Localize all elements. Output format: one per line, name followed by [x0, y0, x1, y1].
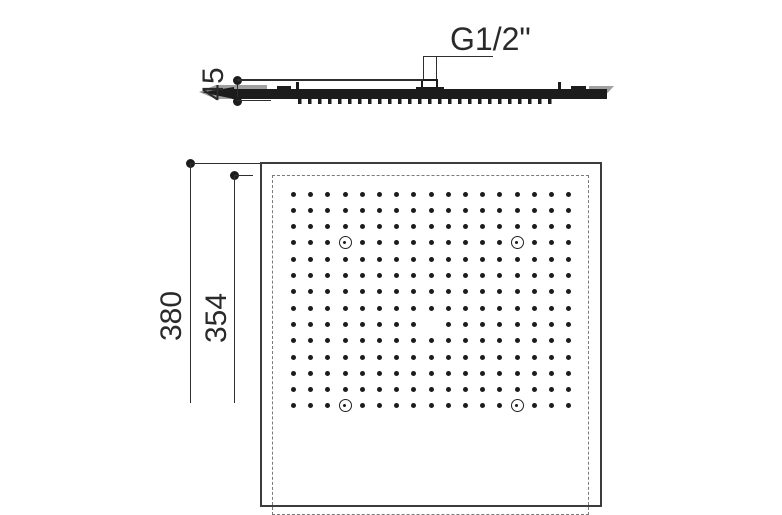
nozzle-teeth-profile: [298, 98, 557, 104]
nozzle-dot: [377, 273, 382, 278]
nozzle-dot: [549, 257, 554, 262]
nozzle-dot: [463, 355, 468, 360]
nozzle-dot: [532, 192, 537, 197]
thread-size-label: G1/2": [450, 22, 531, 56]
nozzle-dot: [360, 224, 365, 229]
nozzle-dot: [308, 257, 313, 262]
nozzle-dot: [566, 355, 571, 360]
nozzle-dot: [429, 338, 434, 343]
top-clip-right: [571, 86, 586, 90]
nozzle-dot: [566, 371, 571, 376]
nozzle-dot: [291, 208, 296, 213]
outer-dim-line: [190, 163, 191, 403]
nozzle-dot: [377, 192, 382, 197]
shower-head-technical-drawing: { "drawing": { "type": "technical-drawin…: [0, 0, 782, 400]
nozzle-dot: [532, 355, 537, 360]
nozzle-dot: [480, 257, 485, 262]
nozzle-dot: [515, 289, 520, 294]
nozzle-dot: [343, 192, 348, 197]
nozzle-dot: [463, 306, 468, 311]
nozzle-dot: [446, 306, 451, 311]
nozzle-dot: [343, 306, 348, 311]
nozzle-dot: [532, 224, 537, 229]
nozzle-dot: [532, 257, 537, 262]
nozzle-dot: [291, 371, 296, 376]
nozzle-dot: [343, 208, 348, 213]
top-clip-left: [277, 86, 291, 90]
nozzle-dot: [360, 273, 365, 278]
mounting-hole: [511, 236, 524, 249]
nozzle-dot: [429, 387, 434, 392]
nozzle-dot: [394, 355, 399, 360]
nozzle-dot: [411, 192, 416, 197]
nozzle-dot: [308, 306, 313, 311]
top-tab-left: [296, 82, 299, 90]
nozzle-dot: [394, 257, 399, 262]
inner-dim-extension: [234, 175, 253, 176]
nozzle-dot: [291, 273, 296, 278]
nozzle-dot: [549, 322, 554, 327]
nozzle-dot: [377, 371, 382, 376]
nozzle-dot: [343, 257, 348, 262]
nozzle-dot: [291, 355, 296, 360]
nozzle-dot: [343, 387, 348, 392]
mounting-hole-center: [343, 241, 346, 244]
nozzle-dot: [343, 355, 348, 360]
nozzle-dot: [463, 371, 468, 376]
nozzle-dot: [394, 306, 399, 311]
nozzle-dot: [532, 387, 537, 392]
height-dim-label: 45: [199, 67, 229, 101]
nozzle-dot: [532, 273, 537, 278]
nozzle-dot: [429, 192, 434, 197]
nozzle-dot: [343, 371, 348, 376]
nozzle-dot: [343, 322, 348, 327]
nozzle-dot: [343, 338, 348, 343]
mounting-hole-center: [343, 404, 346, 407]
nozzle-dot: [549, 273, 554, 278]
nozzle-dot: [360, 257, 365, 262]
nozzle-dot: [549, 208, 554, 213]
nozzle-dot: [497, 192, 502, 197]
nozzle-dot: [566, 192, 571, 197]
nozzle-dot: [446, 322, 451, 327]
thread-connector-flange: [416, 87, 444, 91]
nozzle-dot: [532, 208, 537, 213]
nozzle-dot: [377, 322, 382, 327]
mounting-hole: [511, 399, 524, 412]
nozzle-dot: [549, 306, 554, 311]
mounting-hole-center: [515, 404, 518, 407]
nozzle-dot: [377, 306, 382, 311]
nozzle-dot: [549, 355, 554, 360]
nozzle-dot: [532, 371, 537, 376]
nozzle-dot: [463, 257, 468, 262]
nozzle-dot: [549, 192, 554, 197]
inner-dim-label: 354: [202, 291, 232, 345]
nozzle-dot: [446, 273, 451, 278]
nozzle-dot: [446, 257, 451, 262]
nozzle-dot: [515, 355, 520, 360]
nozzle-dot: [480, 192, 485, 197]
nozzle-dot: [532, 322, 537, 327]
outer-dim-extension: [190, 163, 262, 164]
nozzle-dot: [291, 257, 296, 262]
height-dim-extension-top: [237, 79, 423, 80]
mounting-hole: [339, 399, 352, 412]
nozzle-dot: [360, 192, 365, 197]
nozzle-dot: [377, 208, 382, 213]
nozzle-dot: [429, 289, 434, 294]
nozzle-dot: [360, 208, 365, 213]
top-tab-right: [558, 82, 561, 90]
inner-dim-line: [234, 175, 235, 403]
nozzle-dot: [308, 192, 313, 197]
shower-face-plate: [260, 162, 602, 507]
nozzle-dot: [532, 306, 537, 311]
nozzle-dot: [429, 224, 434, 229]
nozzle-dot: [394, 192, 399, 197]
nozzle-dot: [308, 371, 313, 376]
nozzle-dot: [497, 355, 502, 360]
nozzle-dot: [429, 273, 434, 278]
mounting-hole: [339, 236, 352, 249]
nozzle-dot: [566, 257, 571, 262]
nozzle-dot: [480, 355, 485, 360]
nozzle-dot: [515, 338, 520, 343]
nozzle-dot: [515, 387, 520, 392]
nozzle-dot: [446, 338, 451, 343]
nozzle-dot: [360, 355, 365, 360]
nozzle-dot: [515, 257, 520, 262]
nozzle-dot: [291, 322, 296, 327]
nozzle-dot: [429, 257, 434, 262]
nozzle-dot: [480, 208, 485, 213]
nozzle-dot: [360, 338, 365, 343]
nozzle-dot: [343, 273, 348, 278]
nozzle-dot: [463, 208, 468, 213]
nozzle-dot: [360, 371, 365, 376]
nozzle-dot: [515, 322, 520, 327]
nozzle-dot: [325, 355, 330, 360]
nozzle-dot: [446, 387, 451, 392]
nozzle-dot: [515, 371, 520, 376]
nozzle-dot: [515, 192, 520, 197]
nozzle-dot: [308, 355, 313, 360]
nozzle-dot: [429, 208, 434, 213]
nozzle-dot: [549, 371, 554, 376]
nozzle-dot: [463, 322, 468, 327]
nozzle-dot: [429, 371, 434, 376]
nozzle-dot: [291, 192, 296, 197]
nozzle-dot: [566, 208, 571, 213]
nozzle-dot: [360, 306, 365, 311]
nozzle-dot: [532, 338, 537, 343]
nozzle-dot: [566, 306, 571, 311]
height-dim-extension-bottom: [237, 100, 271, 101]
nozzle-dot: [325, 192, 330, 197]
nozzle-dot: [291, 306, 296, 311]
nozzle-dot: [463, 192, 468, 197]
nozzle-dot: [394, 371, 399, 376]
nozzle-dot: [411, 355, 416, 360]
nozzle-dot: [446, 224, 451, 229]
nozzle-dot: [394, 208, 399, 213]
nozzle-dot: [463, 273, 468, 278]
nozzle-dot: [429, 306, 434, 311]
nozzle-dot: [360, 322, 365, 327]
nozzle-dot: [515, 273, 520, 278]
mounting-hole-center: [515, 241, 518, 244]
nozzle-dot: [480, 306, 485, 311]
nozzle-dot: [377, 257, 382, 262]
nozzle-dot: [515, 224, 520, 229]
nozzle-dot: [446, 192, 451, 197]
nozzle-dot: [446, 208, 451, 213]
nozzle-dot: [515, 306, 520, 311]
outer-dim-label: 380: [157, 289, 187, 343]
nozzle-dot: [343, 224, 348, 229]
nozzle-dot: [360, 387, 365, 392]
nozzle-dot: [429, 355, 434, 360]
nozzle-dot: [377, 355, 382, 360]
nozzle-dot: [446, 371, 451, 376]
nozzle-dot: [343, 289, 348, 294]
nozzle-dot: [446, 355, 451, 360]
nozzle-dot: [515, 208, 520, 213]
nozzle-dot: [480, 371, 485, 376]
nozzle-dot: [308, 208, 313, 213]
